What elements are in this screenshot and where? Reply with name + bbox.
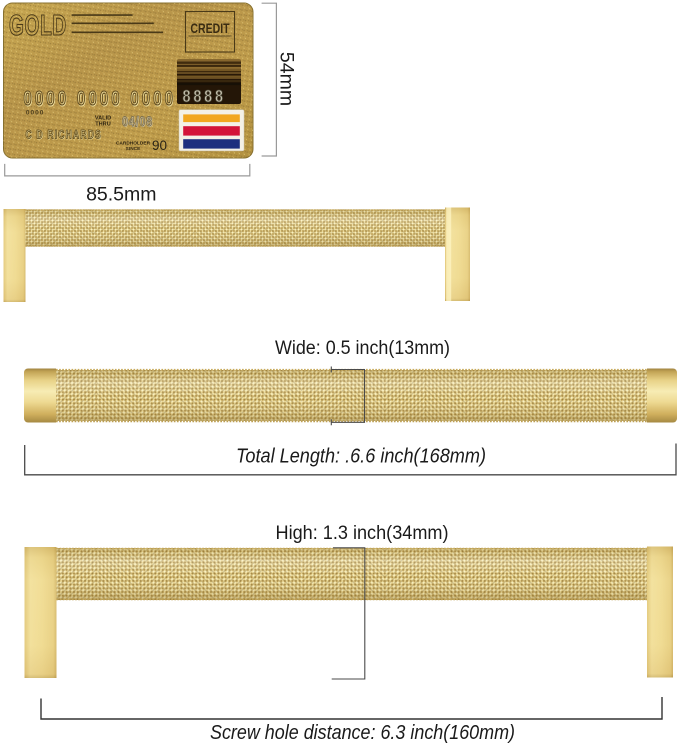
svg-text:0000: 0000 [77,87,123,110]
svg-text:54mm: 54mm [276,52,298,106]
svg-text:High: 1.3 inch(34mm): High: 1.3 inch(34mm) [276,523,449,544]
svg-text:90: 90 [152,138,167,153]
svg-text:C D RICHARDS: C D RICHARDS [26,129,102,142]
svg-text:Screw hole distance: 6.3 inch(: Screw hole distance: 6.3 inch(160mm) [210,722,515,744]
svg-text:0000: 0000 [24,87,70,110]
svg-text:THRU: THRU [95,122,111,128]
svg-text:0000: 0000 [26,110,44,117]
svg-text:85.5mm: 85.5mm [86,184,156,206]
svg-text:GOLD: GOLD [9,10,67,42]
svg-text:8888: 8888 [183,87,226,107]
svg-text:0000: 0000 [130,87,176,110]
svg-text:Wide: 0.5 inch(13mm): Wide: 0.5 inch(13mm) [275,338,450,359]
svg-text:Total Length: .6.6 inch(168mm): Total Length: .6.6 inch(168mm) [236,446,486,468]
svg-text:04/08: 04/08 [122,114,153,130]
svg-text:CREDIT: CREDIT [190,21,230,37]
svg-text:SINCE: SINCE [126,146,141,152]
svg-text:CARDHOLDER: CARDHOLDER [116,141,151,147]
